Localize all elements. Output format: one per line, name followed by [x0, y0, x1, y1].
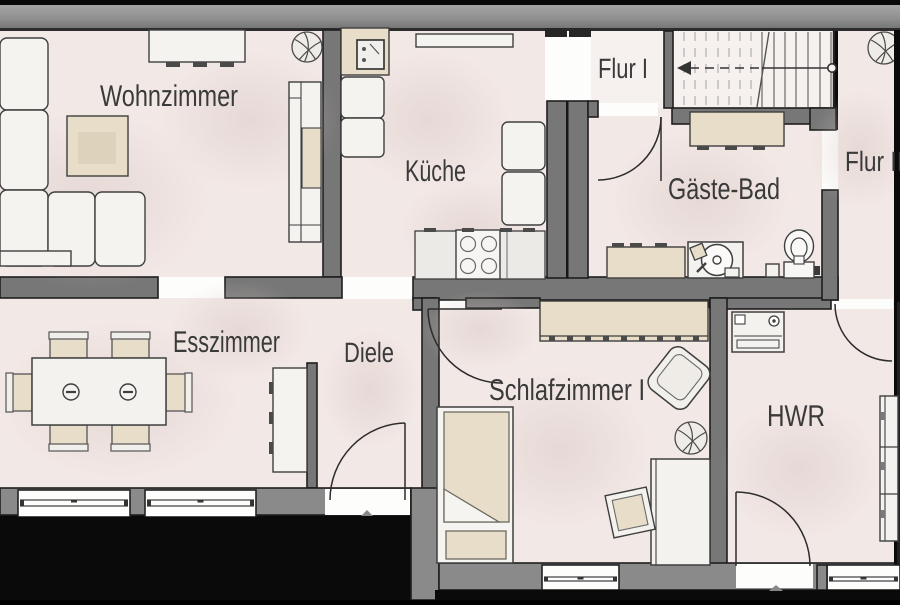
svg-text:Wohnzimmer: Wohnzimmer	[100, 80, 238, 113]
svg-text:Küche: Küche	[405, 155, 466, 188]
svg-text:Flur I: Flur I	[598, 53, 648, 84]
svg-text:Esszimmer: Esszimmer	[173, 326, 280, 359]
svg-text:Schlafzimmer I: Schlafzimmer I	[489, 374, 645, 407]
svg-text:Diele: Diele	[344, 337, 394, 368]
svg-text:HWR: HWR	[767, 400, 825, 433]
svg-text:Flur II: Flur II	[845, 146, 900, 177]
svg-text:Gäste-Bad: Gäste-Bad	[668, 173, 780, 206]
